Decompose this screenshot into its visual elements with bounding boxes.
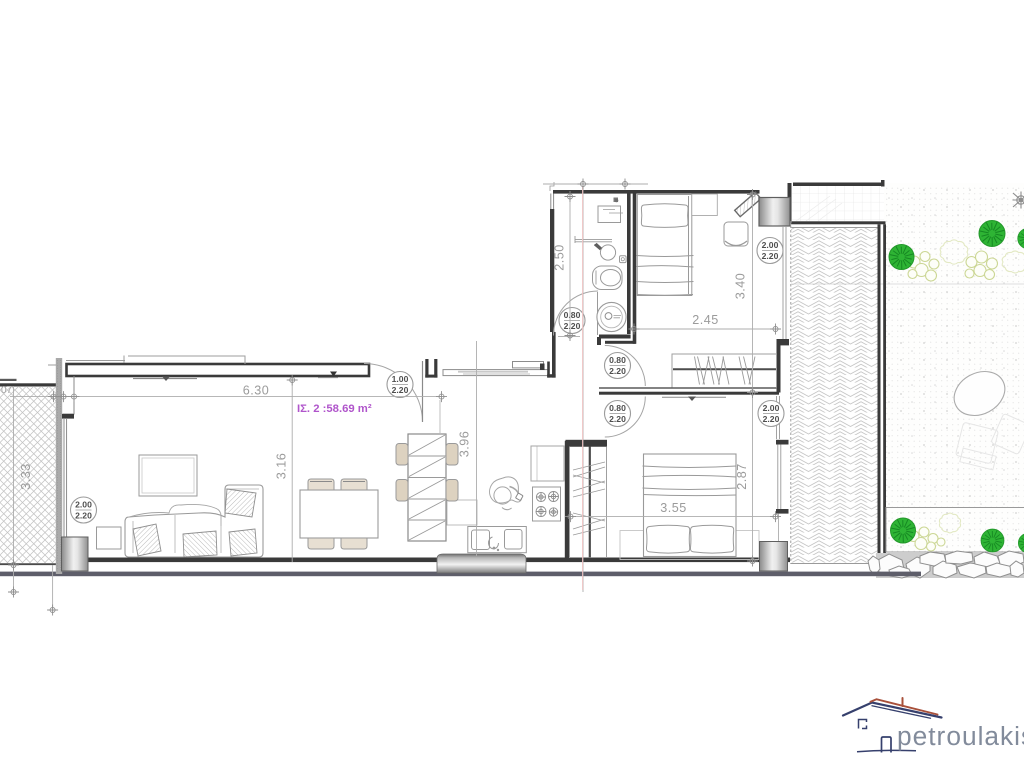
- svg-text:2.50: 2.50: [553, 244, 567, 271]
- svg-text:2.00: 2.00: [762, 240, 779, 250]
- svg-text:ΙΣ. 2 :58.69 m²: ΙΣ. 2 :58.69 m²: [297, 403, 372, 415]
- svg-text:3.55: 3.55: [660, 501, 687, 515]
- svg-text:07: 07: [1, 385, 13, 396]
- svg-text:2.20: 2.20: [75, 511, 92, 521]
- svg-text:3.40: 3.40: [734, 273, 748, 300]
- svg-text:6.30: 6.30: [243, 384, 270, 398]
- svg-text:2.00: 2.00: [75, 500, 92, 510]
- svg-text:0.80: 0.80: [564, 310, 581, 320]
- svg-text:2.20: 2.20: [392, 385, 409, 395]
- svg-text:3.96: 3.96: [458, 431, 472, 458]
- svg-text:2.00: 2.00: [763, 403, 780, 413]
- svg-text:1.00: 1.00: [392, 374, 409, 384]
- svg-text:3.33: 3.33: [19, 463, 33, 490]
- svg-text:2.87: 2.87: [735, 463, 749, 490]
- svg-text:3.16: 3.16: [275, 453, 289, 480]
- svg-text:2.45: 2.45: [692, 313, 719, 327]
- svg-text:0.80: 0.80: [609, 355, 626, 365]
- svg-text:0.80: 0.80: [609, 403, 626, 413]
- svg-text:2.20: 2.20: [564, 321, 581, 331]
- svg-text:2.20: 2.20: [762, 251, 779, 261]
- svg-text:2.20: 2.20: [609, 414, 626, 424]
- svg-text:2.20: 2.20: [763, 414, 780, 424]
- svg-text:petroulakis: petroulakis: [897, 721, 1024, 751]
- svg-text:2.20: 2.20: [609, 366, 626, 376]
